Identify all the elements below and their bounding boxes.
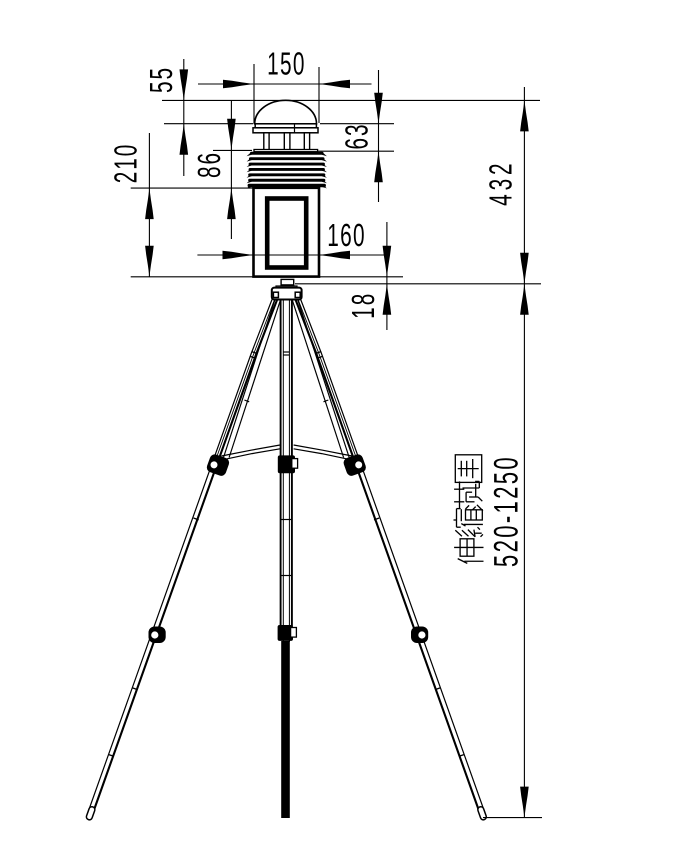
svg-text:150: 150 <box>267 46 306 82</box>
svg-text:86: 86 <box>191 151 227 178</box>
svg-text:210: 210 <box>108 143 144 184</box>
svg-text:55: 55 <box>143 66 179 93</box>
svg-text:160: 160 <box>327 217 366 253</box>
svg-text:18: 18 <box>345 292 381 319</box>
svg-text:432: 432 <box>483 159 519 205</box>
svg-text:520-1250: 520-1250 <box>488 455 526 567</box>
svg-text:63: 63 <box>339 122 375 149</box>
